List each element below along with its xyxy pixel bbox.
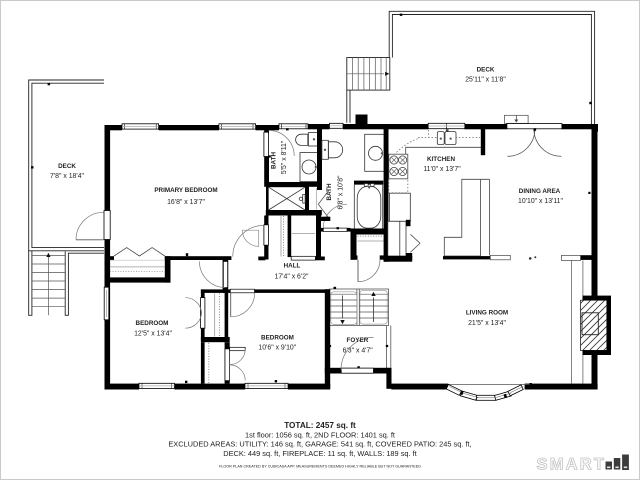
- svg-text:10'6" x 9'10": 10'6" x 9'10": [258, 345, 296, 352]
- svg-text:LIVING ROOM: LIVING ROOM: [466, 310, 508, 317]
- svg-text:DINING AREA: DINING AREA: [519, 188, 561, 195]
- svg-text:KITCHEN: KITCHEN: [427, 156, 455, 163]
- svg-text:HALL: HALL: [284, 263, 301, 270]
- svg-text:21'5" x 13'4": 21'5" x 13'4": [468, 320, 506, 327]
- svg-text:EXCLUDED AREAS: UTILITY: 146 s: EXCLUDED AREAS: UTILITY: 146 sq. ft, GAR…: [168, 440, 471, 449]
- svg-text:FLOOR PLAN CREATED BY CUBICASA: FLOOR PLAN CREATED BY CUBICASA APP. MEAS…: [219, 465, 421, 469]
- svg-text:1st floor: 1056 sq. ft, 2ND FL: 1st floor: 1056 sq. ft, 2ND FLOOR: 1401 …: [245, 430, 395, 439]
- svg-text:17'4" x 6'2": 17'4" x 6'2": [275, 274, 310, 281]
- svg-text:DECK: 449 sq. ft, FIREPLACE: 1: DECK: 449 sq. ft, FIREPLACE: 11 sq. ft, …: [223, 449, 416, 458]
- svg-text:BEDROOM: BEDROOM: [261, 335, 294, 342]
- svg-text:6'8" x 10'8": 6'8" x 10'8": [338, 175, 345, 210]
- svg-text:7'8" x 18'4": 7'8" x 18'4": [50, 173, 85, 180]
- svg-text:DECK: DECK: [477, 67, 495, 74]
- svg-text:FOYER: FOYER: [347, 337, 369, 344]
- svg-text:PRIMARY BEDROOM: PRIMARY BEDROOM: [154, 187, 217, 194]
- svg-text:5'5" x 8'11": 5'5" x 8'11": [281, 140, 288, 174]
- svg-text:TOTAL: 2457 sq. ft: TOTAL: 2457 sq. ft: [284, 421, 356, 430]
- svg-text:DECK: DECK: [58, 163, 76, 170]
- svg-text:BEDROOM: BEDROOM: [136, 320, 169, 327]
- svg-text:BATH: BATH: [270, 152, 277, 169]
- svg-text:16'8" x 13'7": 16'8" x 13'7": [167, 199, 205, 206]
- svg-text:BATH: BATH: [326, 183, 333, 200]
- svg-text:25'11" x 11'8": 25'11" x 11'8": [465, 76, 506, 83]
- svg-text:10'10" x 13'11": 10'10" x 13'11": [518, 198, 563, 205]
- svg-text:12'5" x 13'4": 12'5" x 13'4": [134, 331, 172, 338]
- svg-text:SMART: SMART: [537, 456, 607, 474]
- svg-text:11'0" x 13'7": 11'0" x 13'7": [423, 166, 461, 173]
- svg-text:6'3" x 4'7": 6'3" x 4'7": [343, 348, 374, 355]
